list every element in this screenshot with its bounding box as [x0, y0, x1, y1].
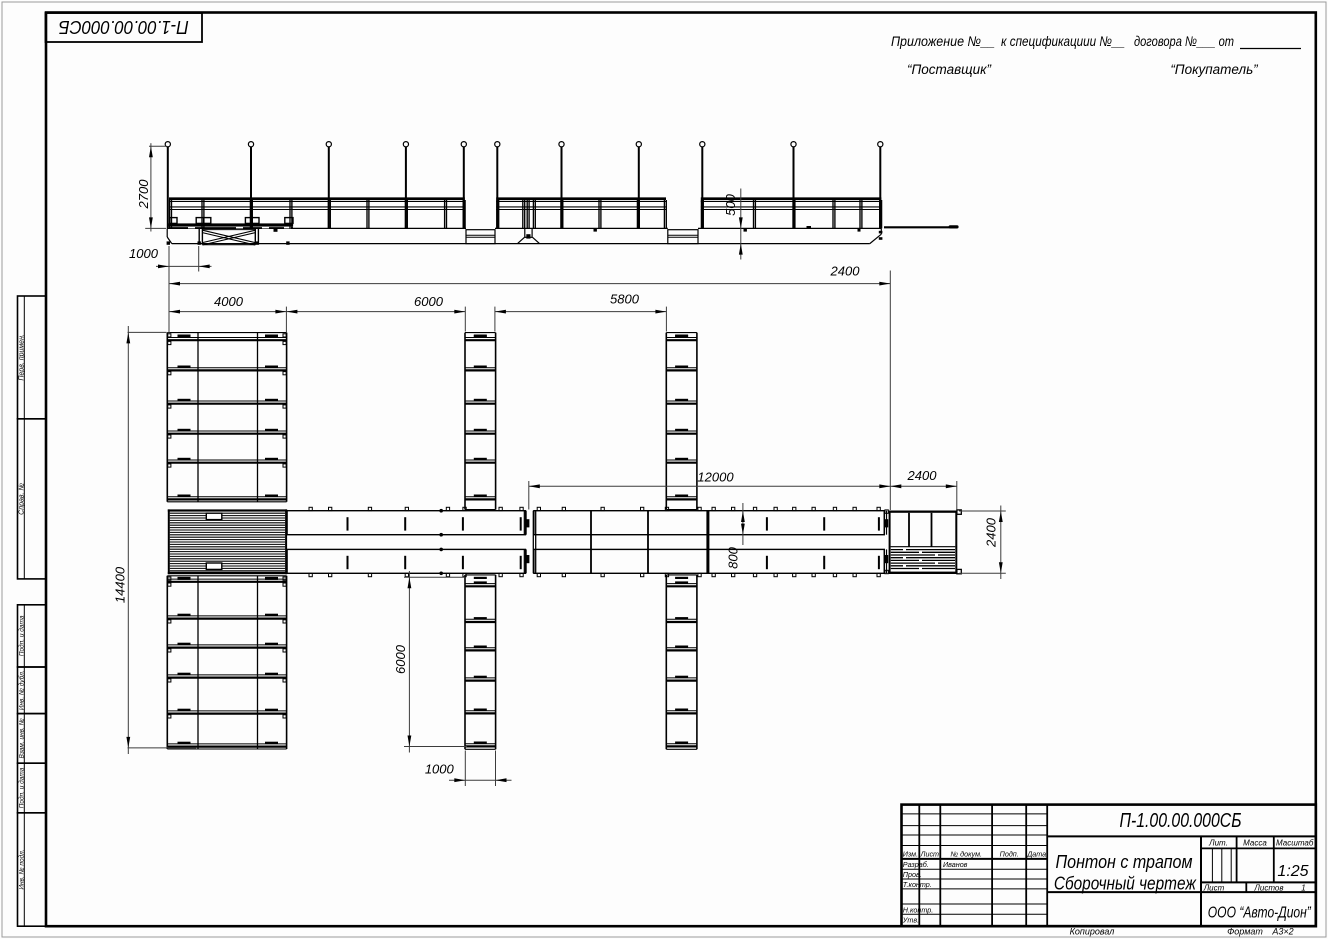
svg-text:2400: 2400	[907, 468, 938, 483]
svg-text:Перв. примен.: Перв. примен.	[18, 334, 25, 381]
svg-text:14400: 14400	[113, 566, 128, 603]
svg-text:Подп.: Подп.	[1000, 849, 1019, 858]
svg-text:П-1.00.00.000СБ: П-1.00.00.000СБ	[58, 17, 188, 37]
svg-text:Сборочный чертеж: Сборочный чертеж	[1054, 874, 1197, 894]
svg-text:Взам. инв. №: Взам. инв. №	[18, 718, 25, 758]
svg-text:№ докум.: № докум.	[950, 849, 982, 858]
svg-text:500: 500	[723, 193, 738, 215]
svg-text:Изм.: Изм.	[903, 849, 918, 858]
svg-text:1000: 1000	[129, 246, 159, 261]
svg-text:Масса: Масса	[1243, 839, 1267, 848]
svg-text:договора №___ от: договора №___ от	[1134, 33, 1234, 49]
svg-text:Справ. №: Справ. №	[18, 483, 25, 515]
svg-text:ООО “Авто-Дион”: ООО “Авто-Дион”	[1208, 905, 1312, 922]
svg-text:Лист: Лист	[920, 849, 940, 858]
svg-text:800: 800	[726, 546, 741, 568]
svg-text:Масштаб: Масштаб	[1276, 839, 1314, 848]
svg-text:Копировал: Копировал	[1070, 927, 1115, 937]
svg-text:Дата: Дата	[1026, 849, 1046, 858]
svg-text:2700: 2700	[136, 179, 151, 210]
svg-text:5800: 5800	[610, 291, 640, 306]
svg-text:Подп. и дата: Подп. и дата	[17, 615, 25, 656]
svg-text:2400: 2400	[830, 264, 861, 279]
svg-text:6000: 6000	[393, 644, 408, 674]
svg-text:1: 1	[1301, 883, 1305, 892]
svg-text:А3×2: А3×2	[1271, 927, 1293, 937]
svg-text:Разраб.: Разраб.	[903, 860, 929, 869]
svg-text:“Покупатель”: “Покупатель”	[1170, 62, 1258, 77]
svg-text:2400: 2400	[984, 517, 999, 548]
svg-text:П-1.00.00.000СБ: П-1.00.00.000СБ	[1120, 810, 1242, 832]
svg-text:Подп. и дата: Подп. и дата	[17, 767, 25, 808]
svg-text:Формат: Формат	[1227, 927, 1263, 937]
svg-text:Инв. № дубл.: Инв. № дубл.	[17, 670, 25, 710]
svg-text:Т.контр.: Т.контр.	[903, 880, 932, 889]
svg-text:Лит.: Лит.	[1208, 839, 1228, 848]
svg-text:4000: 4000	[214, 294, 244, 309]
svg-text:Утв.: Утв.	[902, 916, 919, 925]
svg-text:Лист: Лист	[1203, 883, 1225, 892]
svg-text:1:25: 1:25	[1277, 863, 1308, 880]
svg-text:Иванов: Иванов	[943, 860, 968, 869]
svg-text:12000: 12000	[697, 470, 734, 485]
svg-text:6000: 6000	[414, 294, 444, 309]
svg-text:Инв. № подл.: Инв. № подл.	[17, 849, 25, 890]
svg-text:Пров.: Пров.	[903, 870, 922, 879]
svg-text:1000: 1000	[425, 762, 455, 777]
svg-text:Понтон с трапом: Понтон с трапом	[1056, 852, 1193, 872]
svg-text:к спецификациии №__: к спецификациии №__	[1001, 33, 1125, 49]
svg-text:“Поставщик”: “Поставщик”	[907, 62, 992, 77]
svg-text:Листов: Листов	[1253, 883, 1283, 892]
svg-text:Н.контр.: Н.контр.	[903, 905, 933, 914]
svg-text:Приложение №__: Приложение №__	[891, 33, 995, 49]
